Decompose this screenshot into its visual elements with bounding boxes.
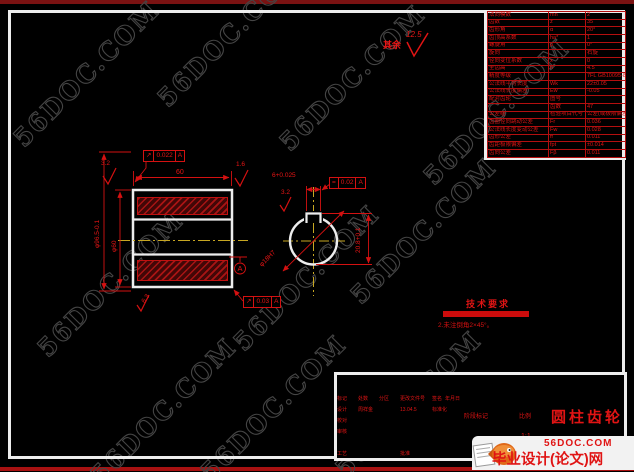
drawing-title: 圆柱齿轮 [551, 406, 623, 427]
dim-outer-dia: φ96.5-0.1 [95, 220, 102, 248]
datum-label: A [238, 265, 243, 273]
tb-audit-label: 审核 [337, 430, 347, 435]
table-row: 螺旋角β0° [488, 42, 626, 50]
table-row: 公法线长度变动公差Fw0.028 [488, 127, 626, 135]
table-cell: 35 [586, 19, 626, 27]
table-cell: Ew [549, 88, 586, 96]
table-row: 齿形公差ff0.011 [488, 134, 626, 142]
cad-drawing-page: 56DOC.COM 56DOC.COM 56DOC.COM 56DOC.COM … [0, 0, 634, 472]
table-row: 齿顶高系数ha*1 [488, 35, 626, 43]
table-cell: 0.036 [586, 119, 626, 127]
table-cell: 公差(或极限偏差)值 [586, 111, 626, 119]
table-cell: -0.05 [586, 88, 626, 96]
tech-req-line2: 2.未注倒角2×45°。 [438, 319, 493, 329]
general-note-roughness: 12.5 [406, 31, 422, 39]
bore-keyway-view [283, 187, 345, 296]
tb-approve-label: 批准 [400, 452, 410, 457]
table-cell [488, 104, 549, 112]
table-cell: ff [549, 134, 586, 142]
roughness-keyway: 3.2 [281, 190, 290, 197]
table-cell: 精度等级 [488, 73, 549, 81]
table-cell: 全齿高 [488, 65, 549, 73]
table-cell: 公法线平均长度 [488, 81, 549, 89]
table-row: 公法线长度偏差Ew-0.05 [488, 88, 626, 96]
dim-keyway-width: 6+0.025 [272, 173, 296, 180]
table-cell: x [549, 58, 586, 66]
table-cell: 47 [586, 104, 626, 112]
table-cell: 22±0.05 [586, 81, 626, 89]
gear-parameter-rows: 法向模数mn2齿数z35齿形角α20°齿顶高系数ha*1螺旋角β0°旋向右旋径向… [487, 11, 626, 158]
table-cell: α [549, 27, 586, 35]
table-cell: 右旋 [586, 50, 626, 58]
table-cell: 0.011 [586, 150, 626, 158]
table-cell: 公法线长度偏差 [488, 88, 549, 96]
table-row: 法向模数mn2 [488, 12, 626, 20]
table-row: 精度等级7FL GB10095-88 [488, 73, 626, 81]
table-cell [549, 73, 586, 81]
tb-stage-label: 阶段标记 [464, 414, 488, 420]
tb-designer: 周祥金 [358, 408, 373, 413]
table-cell: 配对齿轮 [488, 96, 549, 104]
tolerance-frame-keyway: = 0.02 A [329, 177, 366, 189]
tb-header-docno: 更改文件号 [400, 397, 425, 402]
table-cell: 齿距极限偏差 [488, 142, 549, 150]
table-row: 全齿高h4.5 [488, 65, 626, 73]
table-cell: 公法线长度变动公差 [488, 127, 549, 135]
table-row: 齿数47 [488, 104, 626, 112]
site-banner: 56DOC.COM 毕业设计(论文)网 [472, 436, 634, 470]
table-cell: 7FL GB10095-88 [586, 73, 626, 81]
tolerance-datum: A [176, 151, 184, 161]
tech-req-heading: 技术要求 [466, 297, 510, 310]
tolerance-frame-top: ↗ 0.022 A [143, 150, 185, 162]
dim-hub-dia: φ60 [112, 241, 119, 252]
table-row: 旋向右旋 [488, 50, 626, 58]
table-cell: 齿数 [488, 19, 549, 27]
tolerance-symbol: ↗ [144, 151, 154, 161]
table-row: 齿向公差Fβ0.011 [488, 150, 626, 158]
table-row: 齿圈径向跳动公差Fr0.036 [488, 119, 626, 127]
table-row: 径向变位系数x0 [488, 58, 626, 66]
table-cell: fpt [549, 142, 586, 150]
tb-header-mark: 标记 [337, 397, 347, 402]
tb-date: 13.04.5 [400, 408, 417, 413]
table-row: 齿距极限偏差fpt±0.014 [488, 142, 626, 150]
table-cell: h [549, 65, 586, 73]
table-cell: 1 [586, 35, 626, 43]
table-cell: 齿数 [549, 104, 586, 112]
table-cell: 法向模数 [488, 12, 549, 20]
table-cell: mn [549, 12, 586, 20]
tb-header-zone: 分区 [379, 397, 389, 402]
table-cell: 旋向 [488, 50, 549, 58]
table-row: 齿数z35 [488, 19, 626, 27]
table-cell: 4.5 [586, 65, 626, 73]
dim-keyway-depth: 20.8+0.1 [356, 228, 363, 253]
tb-header-date: 年月日 [445, 397, 460, 402]
tolerance-symbol: = [330, 178, 339, 188]
hatch-band-top [137, 197, 228, 215]
tb-check-label: 校对 [337, 419, 347, 424]
table-cell: ha* [549, 35, 586, 43]
table-cell: Wk [549, 81, 586, 89]
tb-process-label: 工艺 [337, 452, 347, 457]
table-cell: 齿形角 [488, 27, 549, 35]
gear-parameter-table: 法向模数mn2齿数z35齿形角α20°齿顶高系数ha*1螺旋角β0°旋向右旋径向… [484, 11, 626, 160]
tech-req-line1: 1.调质处理220～250HBS。 [443, 311, 529, 317]
table-cell: 齿向公差 [488, 150, 549, 158]
table-cell: 齿形公差 [488, 134, 549, 142]
table-cell: Fβ [549, 150, 586, 158]
table-row: 公差组检验项目代号公差(或极限偏差)值 [488, 111, 626, 119]
tb-header-sign: 签名 [432, 397, 442, 402]
table-row: 配对齿轮图号 [488, 96, 626, 104]
table-cell: 公差组 [488, 111, 549, 119]
dim-face-width: 60 [176, 169, 184, 176]
table-cell: Fr [549, 119, 586, 127]
table-cell: 图号 [549, 96, 586, 104]
table-row: 齿形角α20° [488, 27, 626, 35]
table-cell [549, 50, 586, 58]
table-cell: 齿圈径向跳动公差 [488, 119, 549, 127]
tolerance-value: 0.022 [154, 151, 175, 161]
table-cell: 0° [586, 42, 626, 50]
tolerance-value: 0.02 [339, 178, 357, 188]
table-cell: 0.028 [586, 127, 626, 135]
table-cell: 0.011 [586, 134, 626, 142]
tolerance-symbol: ↗ [244, 297, 254, 307]
tolerance-datum: A [272, 297, 280, 307]
hatch-band-bottom [137, 260, 228, 281]
banner-site-name: 毕业设计(论文)网 [492, 448, 603, 469]
table-cell: 2 [586, 12, 626, 20]
table-cell: 0 [586, 58, 626, 66]
roughness-top-right: 1.6 [236, 162, 245, 169]
tb-scale-label: 比例 [519, 414, 531, 420]
table-cell: Fw [549, 127, 586, 135]
table-cell [586, 96, 626, 104]
tolerance-value: 0.03 [254, 297, 272, 307]
roughness-top-left: 3.2 [101, 161, 110, 168]
table-cell: 检验项目代号 [549, 111, 586, 119]
table-cell: 螺旋角 [488, 42, 549, 50]
table-cell: ±0.014 [586, 142, 626, 150]
table-cell: 20° [586, 27, 626, 35]
general-note-prefix: 其余 [383, 41, 401, 50]
table-cell: β [549, 42, 586, 50]
tb-std-label: 标准化 [432, 408, 447, 413]
tb-design-label: 设计 [337, 408, 347, 413]
tolerance-frame-bottom: ↗ 0.03 A [243, 296, 281, 308]
table-cell: 径向变位系数 [488, 58, 549, 66]
table-row: 公法线平均长度Wk22±0.05 [488, 81, 626, 89]
table-cell: 齿顶高系数 [488, 35, 549, 43]
tolerance-datum: A [356, 178, 364, 188]
tb-header-count: 处数 [358, 397, 368, 402]
table-cell: z [549, 19, 586, 27]
